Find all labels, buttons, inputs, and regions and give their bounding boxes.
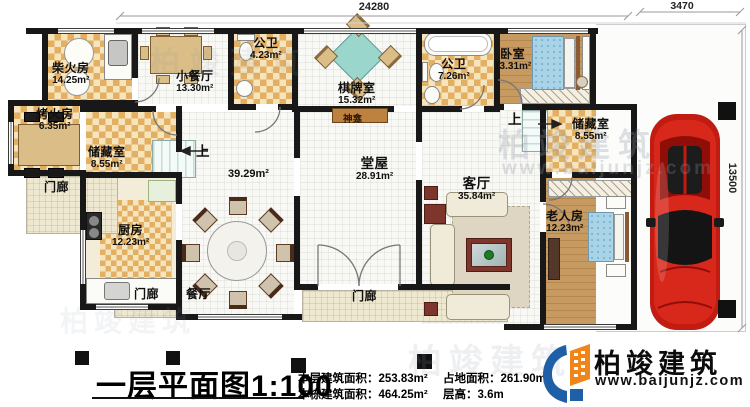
tv-cabinet (424, 204, 446, 224)
wall (416, 106, 462, 112)
elder-bed-duvet (588, 212, 614, 262)
title-underline (92, 397, 304, 399)
legend-column-square (75, 351, 89, 365)
wall (292, 28, 298, 112)
side-table (424, 186, 438, 200)
room-label-storage-right: 储藏室 8.55m² (572, 118, 610, 143)
room-label-kitchen: 厨房 12.23m² (112, 224, 149, 249)
room-label-fire-room: 烤火房 6.35m² (36, 108, 74, 133)
window (58, 28, 114, 34)
stat-land-area: 占地面积：261.90m² (443, 370, 550, 386)
floor-main-hall (300, 112, 416, 284)
wall (294, 112, 300, 158)
wall (416, 180, 422, 290)
room-label-living-room: 客厅 35.84m² (458, 176, 495, 202)
room-label-small-dining: 小餐厅 13.30m² (176, 70, 214, 95)
garage-column-bottom (718, 300, 736, 318)
room-label-bath2: 公卫 7.26m² (438, 58, 470, 83)
chair (156, 75, 170, 84)
kitchen-cabinet (148, 180, 176, 202)
wall (416, 112, 422, 142)
window (96, 304, 148, 310)
elder-bed-pillows (614, 214, 624, 260)
porch-label-bottom-left: 门廊 (134, 288, 159, 301)
stat-floor-height: 层高：3.6m (443, 386, 504, 402)
porch-label-center: 门廊 (352, 290, 377, 303)
lazy-susan (227, 241, 247, 261)
dimension-right: 13500 (726, 148, 738, 208)
window (508, 28, 588, 34)
chair (229, 291, 247, 309)
stool-icon (576, 76, 588, 88)
brand-website: www.baijunjz.com (595, 373, 744, 389)
hall-area-label: 39.29m² (228, 168, 269, 180)
bed-duvet (532, 36, 564, 90)
chair (182, 244, 200, 262)
plant-icon (484, 250, 494, 260)
stat-building-area: 本栋建筑面积：464.25m² (298, 386, 428, 402)
wall (494, 104, 504, 110)
legend-column-square (417, 354, 432, 369)
washbasin-icon (236, 80, 253, 97)
porch-left (26, 176, 118, 234)
wall (416, 28, 422, 112)
chair (276, 244, 294, 262)
sink-icon (108, 40, 128, 66)
window (544, 324, 616, 330)
nightstand (606, 264, 626, 277)
stairs-up-label-right: 上 (508, 112, 522, 127)
room-label-bedroom: 卧室 13.31m² (494, 48, 531, 73)
wall (8, 170, 86, 176)
wall (42, 28, 48, 106)
floor-plan-sheet: 柴火房 14.25m² 小餐厅 13.30m² 公卫 4.23m² 棋牌室 15… (0, 0, 750, 407)
stairs-up-label-left: 上 (196, 144, 210, 159)
dimension-top: 24280 (334, 1, 414, 13)
room-label-firewood: 柴火房 14.25m² (52, 62, 90, 87)
bathtub-inner (428, 36, 488, 52)
room-label-game-room: 棋牌室 15.32m² (338, 82, 376, 107)
wall (398, 284, 510, 290)
room-label-main-hall: 堂屋 28.91m² (356, 156, 393, 182)
window (8, 122, 14, 164)
wall (572, 172, 637, 178)
sofa-chaise (446, 294, 510, 320)
wall (590, 28, 596, 110)
wall (176, 106, 182, 152)
toilet-tank (422, 62, 428, 82)
window (198, 314, 282, 320)
dimension-top-right: 3470 (652, 0, 712, 12)
kitchen-sink-icon (104, 282, 130, 300)
wall (80, 172, 182, 178)
burner (89, 216, 99, 226)
wall (228, 104, 256, 110)
wall (540, 106, 546, 202)
wall (80, 106, 156, 112)
wall (631, 104, 637, 330)
room-label-bath1: 公卫 4.23m² (250, 37, 282, 62)
washbasin-icon (424, 86, 440, 104)
chair (140, 46, 149, 60)
chair (229, 197, 247, 215)
wall (176, 178, 182, 204)
nightstand (606, 196, 626, 209)
stat-floor-area: 本层建筑面积：253.83m² (298, 370, 428, 386)
wall (296, 284, 318, 290)
wall (540, 232, 546, 330)
kitchen-counter (86, 278, 178, 304)
wall (132, 28, 138, 78)
wall (228, 28, 234, 110)
side-table (424, 302, 438, 316)
garage-column-top (718, 102, 736, 120)
burner (89, 228, 99, 238)
window (142, 28, 214, 34)
wall (294, 196, 300, 290)
room-label-elder-room: 老人房 12.23m² (546, 210, 584, 235)
porch-label-left: 门廊 (44, 181, 69, 194)
room-label-dining: 餐厅 (186, 288, 211, 301)
elder-bed-headboard (625, 212, 629, 262)
room-label-storage-left: 储藏室 8.55m² (88, 146, 126, 171)
wardrobe-dark (548, 238, 560, 280)
parking-area (596, 24, 746, 332)
stair-hatch-elder-room (548, 180, 633, 197)
bed-pillows (564, 38, 575, 88)
window (80, 230, 86, 284)
chair (203, 46, 212, 60)
sofa-left (430, 224, 455, 286)
window (304, 28, 416, 34)
stair-hatch-bedroom (520, 88, 590, 104)
shrine-label: 神龛 (343, 109, 362, 127)
